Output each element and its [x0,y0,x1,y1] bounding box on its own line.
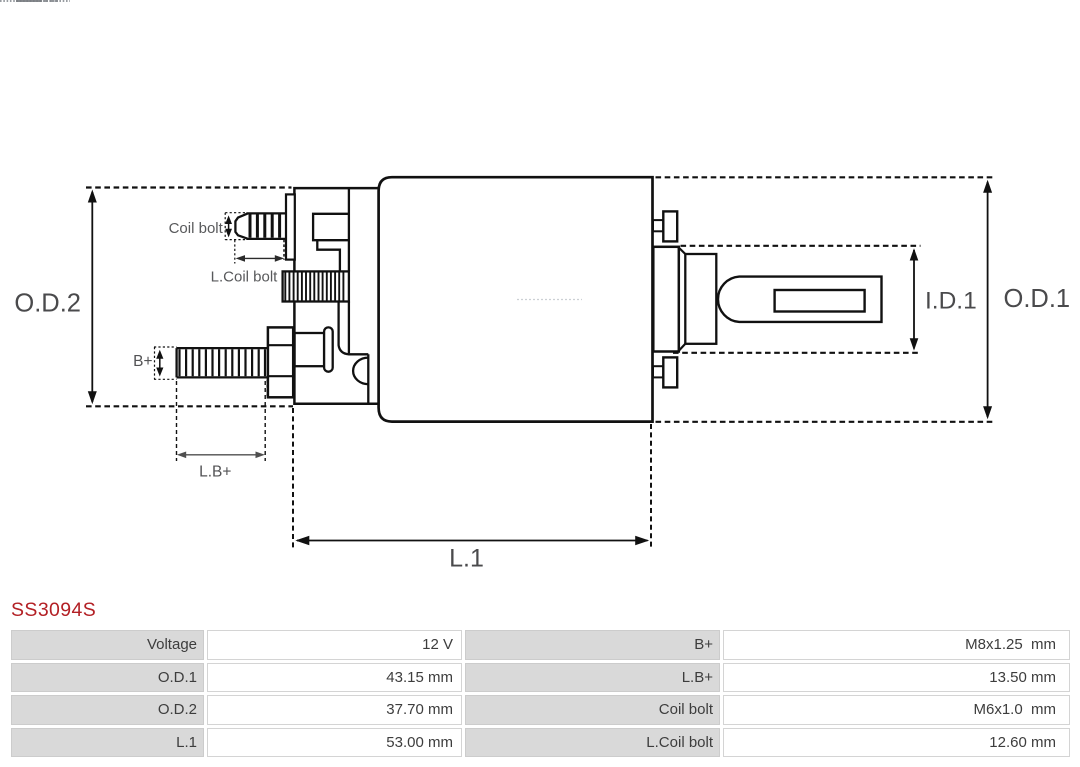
svg-text:O.D.2: O.D.2 [14,290,81,318]
svg-text:L.Coil bolt: L.Coil bolt [211,269,279,286]
svg-text:Coil bolt: Coil bolt [169,220,224,237]
svg-text:I.D.1: I.D.1 [925,288,977,315]
svg-text:L.B+: L.B+ [199,464,231,481]
svg-text:B+: B+ [133,353,152,370]
svg-text:L.1: L.1 [449,545,484,573]
svg-text:O.D.1: O.D.1 [1004,285,1071,313]
